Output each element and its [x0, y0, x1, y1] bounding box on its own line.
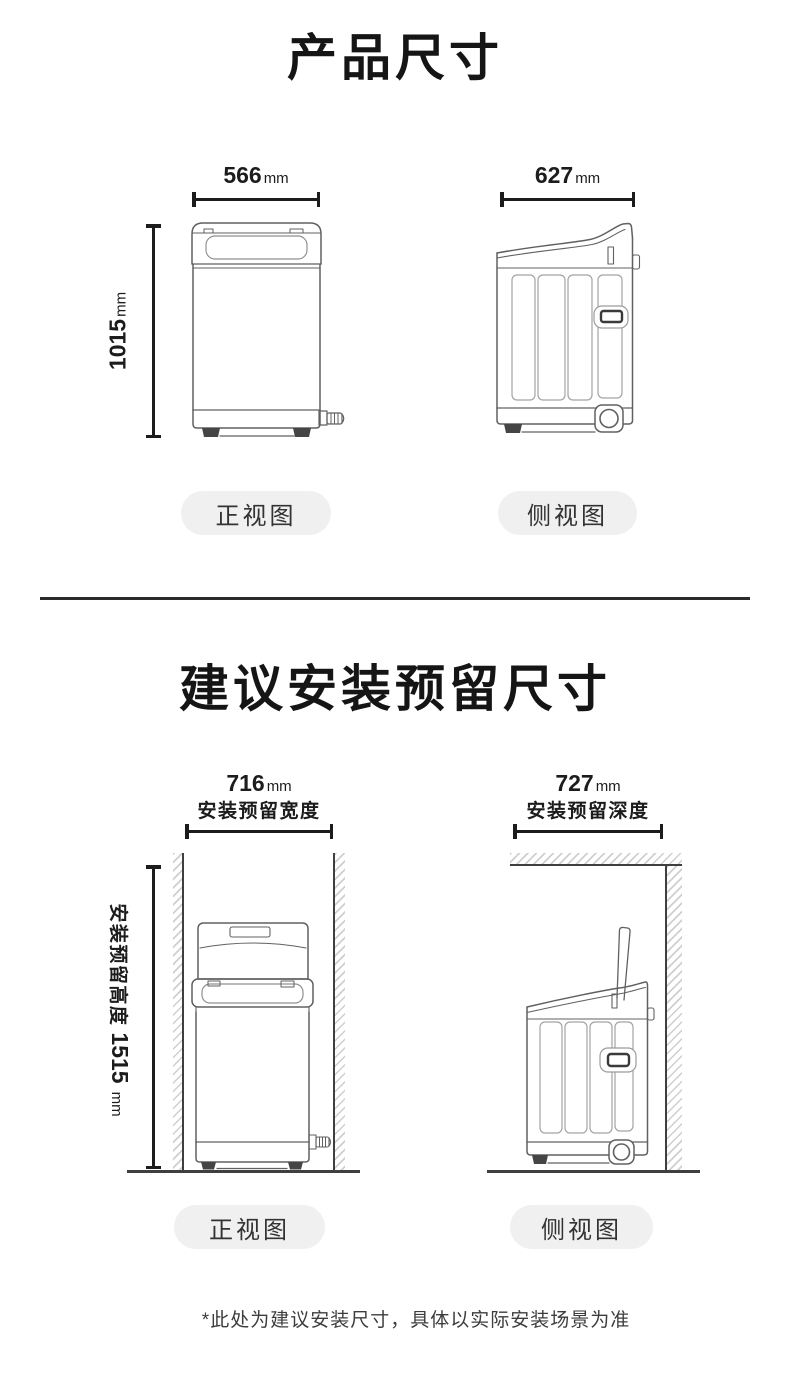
- open-lid: [198, 923, 308, 979]
- install-width-value: 716: [226, 770, 264, 796]
- installation-footnote: *此处为建议安装尺寸，具体以实际安装场景为准: [0, 1305, 790, 1332]
- install-side-view-label-pill: 侧视图: [510, 1205, 653, 1249]
- open-lid-blade: [617, 927, 630, 1000]
- floor-line-side: [487, 1170, 700, 1173]
- install-depth-value: 727: [555, 770, 593, 796]
- install-side-view-label: 侧视图: [541, 1210, 622, 1245]
- side-view-drawing-closed: [490, 218, 650, 442]
- wall-left-hatch: [173, 853, 184, 1170]
- installation-clearance-title: 建议安装预留尺寸: [0, 661, 790, 717]
- hinge-nub: [608, 247, 614, 264]
- side-depth-unit: mm: [575, 170, 600, 187]
- install-front-view-label: 正视图: [209, 1210, 290, 1245]
- install-front-view-label-pill: 正视图: [174, 1205, 325, 1249]
- drain-hose: [309, 1135, 316, 1149]
- lid-window: [206, 236, 307, 259]
- dimension-line: [185, 830, 333, 833]
- back-tab: [633, 255, 640, 269]
- lid-hinge-mark: [204, 229, 213, 233]
- foot: [288, 1162, 303, 1170]
- install-width-dimension: 716mm 安装预留宽度: [185, 770, 333, 833]
- dimension-line: [192, 198, 320, 201]
- handle-plate: [600, 1048, 636, 1072]
- install-depth-dimension-label: 727mm: [513, 770, 663, 800]
- install-height-dimension-line: [152, 866, 155, 1168]
- foot: [293, 428, 311, 437]
- front-width-dimension-label: 566mm: [192, 162, 320, 192]
- side-panel-lines: [540, 1022, 633, 1133]
- foot: [532, 1155, 548, 1164]
- front-view-drawing-open: [186, 921, 336, 1171]
- side-view-label: 侧视图: [527, 496, 608, 531]
- height-value: 1015: [105, 319, 131, 370]
- front-width-dimension: 566mm: [192, 162, 320, 201]
- front-view-label-pill: 正视图: [181, 491, 331, 535]
- foot: [504, 424, 522, 433]
- side-view-label-pill: 侧视图: [498, 491, 637, 535]
- side-panel-lines: [512, 275, 622, 400]
- foot: [201, 1162, 216, 1170]
- machine-base: [196, 1142, 309, 1162]
- machine-body: [193, 264, 320, 410]
- product-dimensions-page: 产品尺寸 566mm 627mm 1015mm: [0, 0, 790, 1390]
- front-width-value: 566: [223, 162, 261, 188]
- height-dimension-line: [152, 225, 155, 437]
- machine-body: [196, 1012, 309, 1142]
- lid-hinge-mark: [290, 229, 303, 233]
- install-height-caption: 安装预留高度: [107, 903, 128, 1026]
- wall-side-hatch: [665, 866, 682, 1170]
- dimension-line: [513, 830, 663, 833]
- side-depth-dimension-label: 627mm: [500, 162, 635, 192]
- front-view-drawing-closed: [186, 220, 354, 442]
- back-tab: [648, 1008, 655, 1020]
- install-height-unit: mm: [108, 1092, 125, 1117]
- height-unit: mm: [113, 292, 130, 317]
- install-depth-unit: mm: [596, 778, 621, 795]
- front-width-unit: mm: [264, 170, 289, 187]
- install-height-value: 1515: [107, 1032, 133, 1083]
- front-view-label: 正视图: [216, 496, 297, 531]
- install-width-dimension-label: 716mm: [185, 770, 333, 800]
- side-depth-dimension: 627mm: [500, 162, 635, 201]
- hinge-nub: [612, 994, 617, 1008]
- product-dimensions-title: 产品尺寸: [0, 30, 790, 86]
- dimension-line: [500, 198, 635, 201]
- install-width-unit: mm: [267, 778, 292, 795]
- side-view-drawing-open: [520, 920, 660, 1170]
- wall-top-hatch: [510, 853, 682, 866]
- lid-recess: [230, 927, 270, 937]
- height-dimension-label: 1015mm: [105, 292, 132, 370]
- install-height-dimension-label: 安装预留高度1515mm: [105, 903, 133, 1116]
- install-depth-dimension: 727mm 安装预留深度: [513, 770, 663, 833]
- install-width-caption: 安装预留宽度: [185, 800, 333, 824]
- section-divider: [40, 597, 750, 600]
- install-depth-caption: 安装预留深度: [513, 800, 663, 824]
- foot: [202, 428, 220, 437]
- side-depth-value: 627: [535, 162, 573, 188]
- machine-base: [193, 410, 320, 428]
